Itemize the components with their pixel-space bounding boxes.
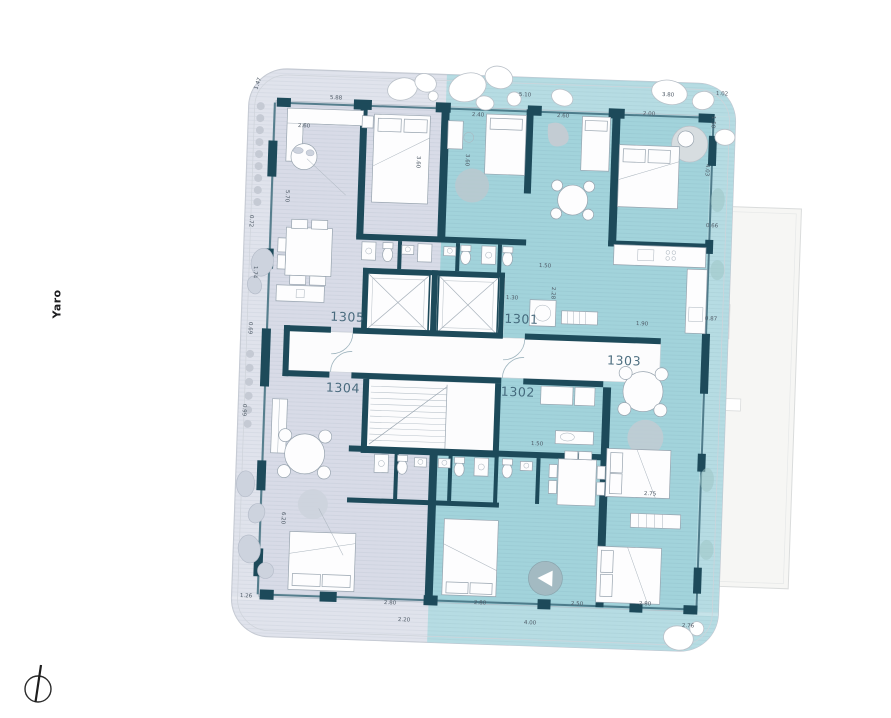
kitchen-cabinet: [540, 386, 573, 405]
unit-label-1304: 1304: [326, 380, 361, 396]
north-arrow-icon: [8, 658, 68, 718]
elevator-shaft: [437, 275, 499, 334]
desk: [447, 121, 463, 150]
unit-label-1302: 1302: [501, 384, 536, 400]
dining-table: [285, 227, 333, 277]
kitchen-counter: [613, 245, 706, 268]
floor-plan-drawing: 1305 1301 1304 1302 1303: [0, 0, 891, 712]
staircase: [365, 379, 497, 452]
dining-table: [557, 459, 597, 506]
floor-plan-page: Yaro: [0, 0, 891, 712]
kitchen-island: [276, 285, 325, 303]
elevator-shaft: [366, 273, 430, 332]
unit-label-1305: 1305: [330, 309, 365, 325]
unit-label-1303: 1303: [607, 352, 642, 368]
wardrobe: [630, 513, 680, 529]
armchair: [291, 143, 318, 170]
unit-label-1301: 1301: [504, 311, 539, 327]
